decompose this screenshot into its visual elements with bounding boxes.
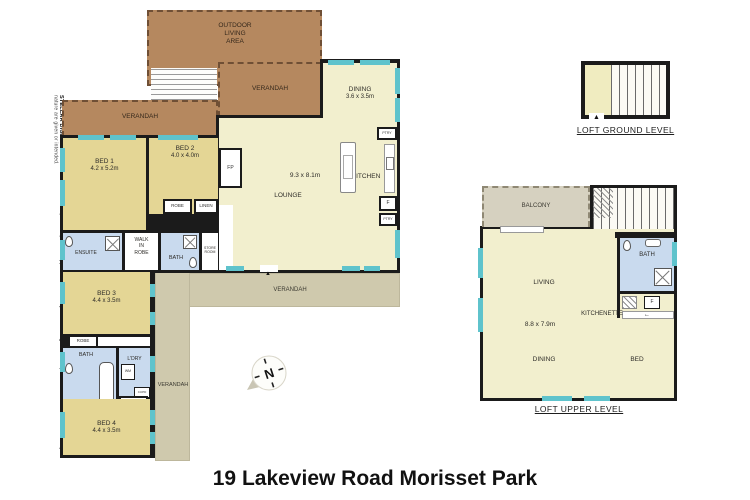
window bbox=[342, 266, 360, 271]
bed1-room bbox=[63, 138, 146, 230]
verandah-left-label: VERANDAH bbox=[100, 113, 180, 121]
bath-main-label: BATH bbox=[161, 255, 191, 262]
loft-bath-label: BATH bbox=[625, 252, 669, 260]
loft-shower-icon bbox=[654, 268, 672, 286]
window bbox=[478, 298, 483, 332]
entry-hall bbox=[219, 205, 233, 270]
balcony-door bbox=[500, 226, 544, 233]
bed1-name: BED 1 bbox=[63, 158, 146, 166]
loft-living-label: LIVING bbox=[514, 279, 574, 287]
ensuite-label: ENSUITE bbox=[66, 250, 106, 256]
bed2-name: BED 2 bbox=[152, 145, 218, 153]
store-room-label: STORE ROOM bbox=[201, 246, 219, 255]
ensuite-toilet-icon bbox=[65, 236, 73, 247]
washing-machine-box: WM bbox=[121, 364, 135, 380]
floor-plan-page: STELLAR DIGITAL Measurements in this flo… bbox=[0, 0, 750, 500]
robe-bed3-box: ROBE bbox=[68, 335, 98, 348]
loft-toilet-icon bbox=[623, 240, 631, 251]
loft-ground-arrow-icon: ▲ bbox=[593, 114, 600, 121]
window bbox=[395, 230, 400, 258]
living-dims-label: 9.3 x 8.1m bbox=[275, 172, 335, 180]
window bbox=[60, 412, 65, 438]
window bbox=[584, 396, 610, 401]
window bbox=[395, 98, 400, 122]
robe-bed2-box: ROBE bbox=[163, 199, 192, 214]
pantry-bottom: PTRY bbox=[379, 213, 397, 226]
bed3-dims: 4.4 x 3.5m bbox=[63, 298, 150, 306]
door bbox=[150, 356, 155, 372]
window bbox=[364, 266, 380, 271]
bed4-dims: 4.4 x 3.5m bbox=[63, 428, 150, 436]
verandah-top-label: VERANDAH bbox=[228, 85, 312, 93]
bath-toilet-icon bbox=[189, 257, 197, 268]
balcony-label: BALCONY bbox=[492, 203, 580, 211]
loft-bed-label: BED bbox=[617, 356, 657, 364]
linen-box: LINEN bbox=[194, 199, 218, 214]
verandah-side-label: VERANDAH bbox=[153, 382, 193, 389]
dining-name: DINING bbox=[328, 86, 392, 94]
bed1-label: BED 1 4.2 x 5.2m bbox=[63, 158, 146, 174]
kitchenette-cabinet bbox=[622, 296, 637, 309]
door bbox=[150, 284, 155, 297]
walk-in-robe-label: WALK IN ROBE bbox=[125, 237, 158, 256]
kitchenette-arrow-icon: ← bbox=[644, 312, 650, 318]
bed3-name: BED 3 bbox=[63, 290, 150, 298]
fireplace-box: FP bbox=[219, 148, 242, 188]
bed3-label: BED 3 4.4 x 3.5m bbox=[63, 290, 150, 306]
dining-dims: 3.6 x 3.5m bbox=[328, 94, 392, 102]
verandah-side bbox=[155, 273, 190, 461]
loft-dining-label: DINING bbox=[514, 356, 574, 364]
bath-shower-icon bbox=[183, 235, 197, 249]
window bbox=[60, 148, 65, 172]
verandah-rear-label: VERANDAH bbox=[250, 287, 330, 295]
window bbox=[395, 68, 400, 94]
window bbox=[110, 135, 136, 140]
bed4-name: BED 4 bbox=[63, 420, 150, 428]
window bbox=[150, 410, 155, 425]
window bbox=[226, 266, 244, 271]
bath2-label: BATH bbox=[66, 352, 106, 359]
window bbox=[60, 240, 65, 260]
compass: N bbox=[240, 348, 294, 398]
loft-ground-stairs bbox=[611, 65, 666, 115]
hall-gap bbox=[98, 337, 150, 346]
loft-basin-icon bbox=[645, 239, 661, 247]
window bbox=[478, 248, 483, 278]
ensuite-shower-icon bbox=[105, 236, 120, 251]
loft-ground-caption: LOFT GROUND LEVEL bbox=[573, 125, 678, 135]
window bbox=[60, 352, 65, 372]
bed2-label: BED 2 4.0 x 4.0m bbox=[152, 145, 218, 161]
bed4-label: BED 4 4.4 x 3.5m bbox=[63, 420, 150, 436]
window bbox=[60, 180, 65, 206]
loft-dims-label: 8.8 x 7.9m bbox=[508, 321, 572, 329]
page-title: 19 Lakeview Road Morisset Park bbox=[0, 466, 750, 492]
window bbox=[672, 242, 677, 266]
bed2-dims: 4.0 x 4.0m bbox=[152, 153, 218, 161]
kitchenette-label: KITCHENETTE bbox=[566, 311, 638, 319]
loft-ground-entry bbox=[585, 65, 611, 115]
entry-arrow-icon: ▲ bbox=[265, 271, 271, 277]
stove-icon bbox=[343, 155, 353, 179]
lounge-label: LOUNGE bbox=[258, 192, 318, 200]
window bbox=[542, 396, 572, 401]
bed1-dims: 4.2 x 5.2m bbox=[63, 166, 146, 174]
deck-stairs bbox=[151, 68, 217, 100]
fridge-box: F bbox=[379, 196, 397, 211]
window bbox=[328, 60, 354, 65]
window bbox=[150, 432, 155, 444]
loft-upper-caption: LOFT UPPER LEVEL bbox=[520, 404, 638, 414]
stairs-hatch bbox=[593, 188, 613, 218]
bath2-toilet-icon bbox=[65, 363, 73, 374]
outdoor-living-label: OUTDOOR LIVING AREA bbox=[170, 22, 300, 46]
loft-fridge-box: F bbox=[644, 296, 660, 309]
dining-label: DINING 3.6 x 3.5m bbox=[328, 86, 392, 102]
pantry-top: PTRY bbox=[377, 127, 397, 140]
wall-kitchenette bbox=[617, 291, 677, 294]
window bbox=[60, 282, 65, 304]
sink-icon bbox=[386, 157, 394, 170]
window bbox=[78, 135, 104, 140]
window bbox=[360, 60, 390, 65]
window bbox=[150, 312, 155, 325]
window bbox=[158, 135, 198, 140]
laundry-label: L'DRY bbox=[118, 356, 151, 362]
